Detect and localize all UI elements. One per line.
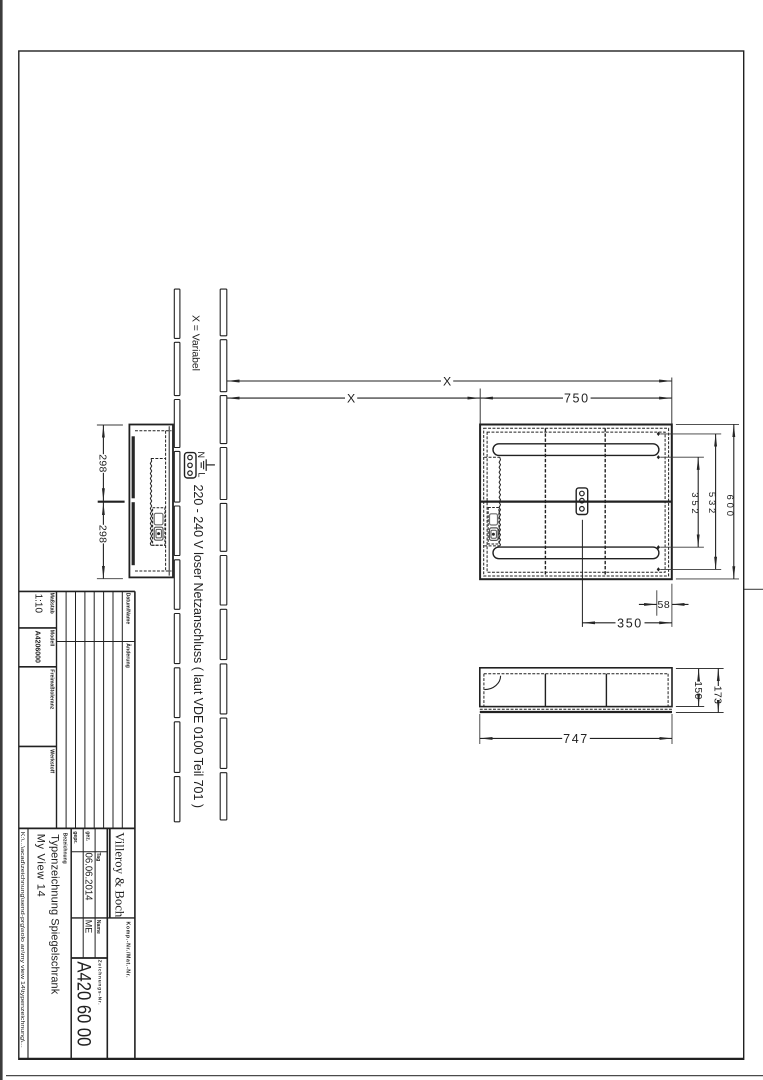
svg-text:Komp.-Nr./Mat.-Nr.: Komp.-Nr./Mat.-Nr. bbox=[125, 922, 131, 979]
svg-text:220 - 240 V loser Netzanschlus: 220 - 240 V loser Netzanschluss ( laut V… bbox=[191, 485, 205, 809]
svg-text:X: X bbox=[443, 374, 451, 388]
svg-text:gez.: gez. bbox=[84, 831, 90, 842]
svg-text:Zeichnungs-Nr.: Zeichnungs-Nr. bbox=[96, 960, 102, 1005]
svg-text:L: L bbox=[197, 472, 207, 477]
svg-text:1:10: 1:10 bbox=[32, 594, 43, 614]
svg-text:58: 58 bbox=[658, 599, 671, 611]
svg-text:Freimaßtoleranz: Freimaßtoleranz bbox=[49, 669, 55, 709]
svg-text:06.06.2014: 06.06.2014 bbox=[82, 853, 93, 901]
svg-text:K:\...\acad\zeichnung\send-prg: K:\...\acad\zeichnung\send-prg\solo an\m… bbox=[19, 832, 25, 1048]
svg-text:600: 600 bbox=[724, 495, 735, 519]
svg-text:298: 298 bbox=[97, 454, 109, 472]
svg-text:gepr.: gepr. bbox=[72, 831, 78, 844]
svg-text:747: 747 bbox=[563, 732, 589, 746]
svg-text:ME: ME bbox=[82, 920, 93, 934]
svg-text:173: 173 bbox=[711, 686, 723, 704]
svg-text:Typenzeichnung Spiegelschrank: Typenzeichnung Spiegelschrank bbox=[49, 834, 61, 995]
svg-text:298: 298 bbox=[97, 525, 109, 543]
svg-text:My View 14: My View 14 bbox=[35, 834, 47, 897]
svg-text:Name: Name bbox=[95, 920, 101, 934]
svg-text:A420 60 00: A420 60 00 bbox=[72, 961, 93, 1046]
svg-text:Tag: Tag bbox=[95, 853, 101, 862]
svg-text:750: 750 bbox=[564, 392, 590, 406]
svg-text:Werkstoff: Werkstoff bbox=[49, 749, 55, 773]
svg-text:X = Variabel: X = Variabel bbox=[190, 315, 202, 371]
svg-text:350: 350 bbox=[617, 616, 643, 630]
svg-text:Bezeichnung: Bezeichnung bbox=[61, 833, 67, 864]
svg-text:Villeroy & Boch: Villeroy & Boch bbox=[112, 832, 127, 917]
svg-text:Maßstab: Maßstab bbox=[49, 593, 55, 614]
svg-text:Änderung: Änderung bbox=[124, 643, 131, 668]
svg-text:352: 352 bbox=[689, 492, 700, 516]
svg-text:X: X bbox=[347, 392, 355, 406]
svg-text:Datum/Name: Datum/Name bbox=[124, 593, 130, 625]
svg-text:150: 150 bbox=[692, 681, 704, 699]
svg-text:N: N bbox=[196, 452, 206, 459]
svg-text:Modell: Modell bbox=[49, 630, 55, 647]
svg-text:532: 532 bbox=[706, 492, 717, 516]
svg-text:A4206000: A4206000 bbox=[33, 631, 40, 663]
